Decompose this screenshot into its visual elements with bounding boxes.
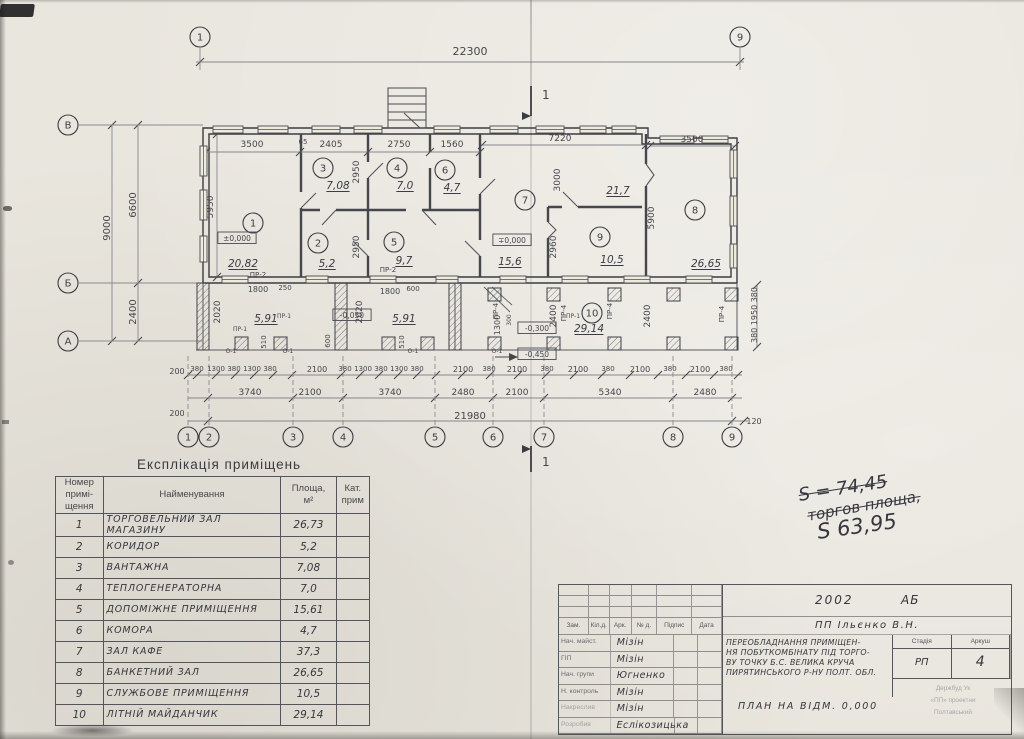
axis-label: В: [65, 121, 72, 132]
dim-label: 6600: [128, 192, 139, 217]
signature-cell: [674, 701, 698, 717]
staff-row: НакресливМізін: [559, 701, 722, 718]
title-block-grid: Зам.Кіл.д.Арк.№ д.ПідписДата Нач. майст.…: [559, 585, 723, 734]
axis-label: А: [65, 337, 72, 348]
room-number: 8: [692, 206, 698, 217]
element-mark: ПР-4: [718, 305, 726, 322]
project-line: Пирятинського р-ну Полт. обл.: [726, 668, 889, 678]
element-mark: О-1: [492, 348, 503, 355]
project-description: Переобладнання приміщен-ня побуткомбінат…: [723, 635, 893, 697]
axis-label: 9: [737, 33, 743, 44]
staff-role: ГІП: [559, 652, 611, 668]
room-cat-cell: [336, 536, 369, 557]
dim-label: 2100: [568, 365, 588, 374]
staff-name: Мізін: [611, 685, 675, 701]
room-name-cell: Теплогенераторна: [103, 578, 281, 599]
room-cat-cell: [336, 578, 369, 599]
staff-row: РозробивЕслікозицька: [559, 718, 722, 735]
room-area: 5,2: [319, 258, 336, 270]
axis-label: 1: [197, 33, 203, 44]
date-cell: [698, 718, 722, 734]
room-number-cell: 5: [56, 599, 104, 620]
dim-label: 380: [663, 365, 676, 373]
table-row: 6Комора4,7: [56, 620, 370, 641]
room-number: 5: [391, 238, 397, 249]
explication-block: Експлікація приміщень Номер примі- щення…: [55, 457, 370, 726]
room-number: 2: [315, 239, 321, 250]
dim-label: 250: [278, 284, 291, 292]
dim-label: 380: [410, 365, 423, 373]
signature-cell: [674, 685, 698, 701]
element-mark: О-1: [283, 348, 294, 355]
pier-column: [488, 288, 501, 301]
dim-label: 2100: [630, 365, 650, 374]
pier-column: [725, 288, 738, 301]
entrance-stairs: [388, 88, 426, 128]
pier-column: [449, 283, 461, 350]
staff-role: Накреслив: [559, 701, 611, 717]
room-name-cell: Зал кафе: [103, 641, 281, 662]
room-number: 4: [394, 164, 400, 175]
level-mark: ±0,000: [223, 234, 251, 243]
level-mark: -0,450: [525, 350, 549, 359]
table-row: 3Вантажна7,08: [56, 557, 370, 578]
room-number: 3: [320, 164, 326, 175]
room-cat-cell: [336, 662, 369, 683]
col-header-number: Номер примі- щення: [56, 477, 104, 514]
room-name-cell: Літній майданчик: [103, 704, 281, 725]
pier-column: [421, 337, 434, 350]
room-area: 29,14: [574, 323, 604, 335]
room-name-cell: Коридор: [103, 536, 281, 557]
element-mark: ПР-4: [492, 302, 500, 319]
dim-label: 380: [190, 365, 203, 373]
element-mark: ПР-4: [606, 302, 614, 319]
table-row: 5Допоміжне приміщення15,61: [56, 599, 370, 620]
title-block-empty-row: [559, 585, 722, 596]
empty-cell: [632, 585, 658, 595]
room-area-cell: 7,0: [281, 578, 336, 599]
staff-row: Нач. групиЮгненко: [559, 668, 722, 685]
room-area: 7,0: [397, 180, 414, 192]
empty-cell: [559, 585, 589, 595]
dim-label: 3000: [553, 168, 563, 191]
dim-label: 1300: [243, 365, 261, 373]
section-mark-top: 1: [522, 86, 550, 120]
room-area-cell: 15,61: [281, 599, 336, 620]
axis-label: 4: [340, 433, 346, 444]
header-cell: Дата: [692, 618, 722, 634]
axis-label: 3: [290, 433, 296, 444]
signature-cell: [675, 718, 699, 734]
room-cat-cell: [336, 641, 369, 662]
room-area-cell: 26,73: [281, 513, 336, 536]
element-mark: О-1: [226, 348, 237, 355]
room-name-cell: Вантажна: [103, 557, 281, 578]
area-label: 5,91: [392, 313, 415, 325]
axis-label: 7: [541, 433, 547, 444]
room-area-cell: 4,7: [281, 620, 336, 641]
faint-line: Полтавський: [899, 707, 1007, 719]
project-line: Переобладнання приміщен-: [726, 638, 889, 648]
room-cat-cell: [336, 599, 369, 620]
dim-label: 2950: [352, 235, 362, 258]
dim-label: 5950: [206, 195, 216, 218]
element-mark: ПР-1: [233, 326, 247, 333]
sheet-label: Аркуш: [952, 635, 1011, 648]
room-number-cell: 10: [56, 704, 104, 725]
room-area: 20,82: [228, 258, 258, 270]
dim-label: 2100: [307, 365, 327, 374]
dim-label: 120: [746, 417, 761, 426]
title-block-header-row: Зам.Кіл.д.Арк.№ д.ПідписДата: [559, 618, 722, 635]
date-cell: [698, 668, 722, 684]
year-row: 2002 АБ: [723, 585, 1011, 617]
dim-label: 7220: [549, 134, 572, 144]
drawing-title: План на відм. 0,000: [723, 701, 893, 712]
dim-label: 2100: [690, 365, 710, 374]
room-name-cell: Службове приміщення: [103, 683, 281, 704]
explication-table: Номер примі- щення Найменування Площа, м…: [55, 476, 370, 726]
pier-column: [235, 337, 248, 350]
dim-label: 65: [299, 138, 308, 146]
explication-title: Експлікація приміщень: [137, 457, 370, 472]
header-cell: Кіл.д.: [589, 618, 610, 634]
room-area-cell: 5,2: [281, 536, 336, 557]
dim-label: 380: [482, 365, 495, 373]
staff-name: Мізін: [611, 635, 675, 651]
axis-label: 2: [206, 433, 212, 444]
empty-cell: [657, 585, 692, 595]
dim-label: 2405: [320, 140, 343, 150]
room-area-cell: 10,5: [281, 683, 336, 704]
empty-cell: [589, 585, 610, 595]
room-number: 1: [250, 219, 256, 230]
date-cell: [698, 701, 722, 717]
room-number-cell: 2: [56, 536, 104, 557]
pier-column: [547, 288, 560, 301]
room-number: 9: [597, 233, 603, 244]
empty-cell: [610, 596, 632, 606]
col-header-name: Найменування: [103, 477, 281, 514]
pier-column: [725, 337, 738, 350]
signature-cell: [674, 635, 698, 651]
dim-label: 1800: [248, 285, 268, 294]
room-name-cell: Комора: [103, 620, 281, 641]
empty-cell: [610, 585, 632, 595]
axis-label: 1: [185, 433, 191, 444]
outer-walls: [203, 128, 737, 283]
dim-label: 380: [374, 365, 387, 373]
axis-label: 9: [729, 433, 735, 444]
level-mark: -0,050: [340, 311, 364, 320]
staff-name: Еслікозицька: [611, 718, 675, 734]
scanned-drawing-sheet: 1 1 19123456789ВБА2230035006524052750156…: [0, 0, 1024, 739]
dim-label: 200: [169, 409, 184, 418]
room-cat-cell: [336, 620, 369, 641]
room-name-cell: Торговельний зал магазину: [103, 513, 281, 536]
dim-label: 600: [324, 334, 332, 347]
header-cell: Підпис: [657, 618, 692, 634]
empty-cell: [632, 596, 658, 606]
table-row: 1Торговельний зал магазину26,73: [56, 513, 370, 536]
title-block-empty-row: [559, 607, 722, 618]
room-number-cell: 4: [56, 578, 104, 599]
room-cat-cell: [336, 704, 369, 725]
empty-cell: [692, 585, 722, 595]
section-mark-bottom: 1: [522, 445, 550, 472]
faint-line: «ПП» проектни: [899, 695, 1007, 707]
dim-label: 21980: [454, 411, 486, 422]
year-value: 2002: [815, 593, 854, 607]
staff-row: Нач. майст.Мізін: [559, 635, 722, 652]
stage-sheet-grid: Стадія Аркуш РП 4: [893, 635, 1011, 679]
dim-label: 2400: [128, 299, 139, 324]
area-label: 5,91: [254, 313, 277, 325]
empty-cell: [657, 607, 692, 617]
room-number-cell: 7: [56, 641, 104, 662]
dim-label: 1300: [390, 365, 408, 373]
signature-cell: [674, 668, 698, 684]
empty-cell: [559, 607, 589, 617]
header-cell: Зам.: [559, 618, 589, 634]
element-mark: ПР-2: [250, 271, 266, 279]
room-area: 9,7: [396, 255, 413, 267]
empty-cell: [589, 596, 610, 606]
table-row: 4Теплогенераторна7,0: [56, 578, 370, 599]
sheet-value: 4: [952, 649, 1011, 679]
dim-label: 380: [227, 365, 240, 373]
header-cell: № д.: [632, 618, 658, 634]
dim-label: 2020: [213, 300, 223, 323]
pier-column: [382, 337, 395, 350]
dim-label: 3500: [241, 140, 264, 150]
element-mark: ПР-1: [566, 313, 580, 320]
axis-label: 5: [432, 433, 438, 444]
dim-label: 380: [338, 365, 351, 373]
room-area-cell: 26,65: [281, 662, 336, 683]
firm-name: ПП Ільєнко В.Н.: [723, 617, 1011, 635]
table-row: 7Зал кафе37,3: [56, 641, 370, 662]
room-area: 10,5: [600, 254, 624, 266]
empty-cell: [632, 607, 658, 617]
dim-label: 5900: [647, 206, 657, 229]
faint-stamp-text: Держбуд Ук«ПП» проектниПолтавський: [899, 683, 1007, 720]
room-number-cell: 9: [56, 683, 104, 704]
element-mark: ПР-4: [560, 304, 568, 321]
dim-label: 3740: [379, 388, 402, 398]
faint-line: Держбуд Ук: [899, 683, 1007, 695]
staff-role: Нач. майст.: [559, 635, 611, 651]
staff-name: Мізін: [611, 652, 675, 668]
date-cell: [698, 652, 722, 668]
room-area-cell: 29,14: [281, 704, 336, 725]
dim-label: 300: [506, 314, 513, 326]
staff-name: Югненко: [611, 668, 675, 684]
table-row: 10Літній майданчик29,14: [56, 704, 370, 725]
title-block-right: 2002 АБ ПП Ільєнко В.Н. Переобладнання п…: [723, 585, 1011, 734]
date-cell: [698, 635, 722, 651]
dim-label: 2480: [694, 388, 717, 398]
dim-label: 1300: [207, 365, 225, 373]
dim-label: 2400: [549, 304, 559, 327]
col-header-area: Площа, м²: [281, 477, 336, 514]
room-area: 4,7: [444, 182, 461, 194]
project-line: ву точку б.с. Велика Круча: [726, 658, 889, 668]
dim-label: 200: [169, 367, 184, 376]
section-label: 1: [542, 88, 550, 102]
dim-label: 2400: [643, 304, 653, 327]
pier-column: [608, 288, 621, 301]
staff-name: Мізін: [611, 701, 675, 717]
empty-cell: [559, 596, 589, 606]
project-line: ня побуткомбінату під торго-: [726, 648, 889, 658]
stage-label: Стадія: [893, 635, 952, 648]
room-number-cell: 8: [56, 662, 104, 683]
table-row: 8Банкетний зал26,65: [56, 662, 370, 683]
dim-label: 2100: [299, 388, 322, 398]
room-area-cell: 7,08: [281, 557, 336, 578]
pier-column: [608, 337, 621, 350]
col-header-cat: Кат. прим: [336, 477, 369, 514]
dim-label: 5340: [599, 388, 622, 398]
staff-role: Н. контроль: [559, 685, 611, 701]
pier-column: [197, 283, 209, 350]
table-row: 9Службове приміщення10,5: [56, 683, 370, 704]
dim-label: 380: [263, 365, 276, 373]
title-block: Зам.Кіл.д.Арк.№ д.ПідписДата Нач. майст.…: [558, 584, 1012, 735]
staff-row: Н. контрольМізін: [559, 685, 722, 702]
staff-role: Розробив: [559, 718, 611, 734]
room-number-cell: 1: [56, 513, 104, 536]
dim-label: 3740: [239, 388, 262, 398]
room-number-cell: 6: [56, 620, 104, 641]
empty-cell: [589, 607, 610, 617]
empty-cell: [610, 607, 632, 617]
element-mark: ПР-1: [277, 313, 291, 320]
area-label: 21,7: [606, 185, 630, 197]
dim-label: 2750: [388, 140, 411, 150]
code-value: АБ: [901, 593, 919, 607]
staff-role: Нач. групи: [559, 668, 611, 684]
room-cat-cell: [336, 557, 369, 578]
axis-label: 8: [670, 433, 676, 444]
room-cat-cell: [336, 683, 369, 704]
title-block-empty-row: [559, 596, 722, 607]
signature-cell: [674, 652, 698, 668]
room-name-cell: Допоміжне приміщення: [103, 599, 281, 620]
room-name-cell: Банкетний зал: [103, 662, 281, 683]
dim-label: 22300: [453, 45, 488, 58]
level-mark: ∓0,000: [498, 236, 526, 245]
dim-label: 1560: [441, 140, 464, 150]
room-cat-cell: [336, 513, 369, 536]
dim-label: 380: [540, 365, 553, 373]
axis-label: 6: [490, 433, 496, 444]
pier-column: [667, 288, 680, 301]
room-area: 7,08: [326, 180, 350, 192]
empty-cell: [692, 607, 722, 617]
empty-cell: [657, 596, 692, 606]
axis-label: Б: [65, 279, 72, 290]
room-number: 7: [522, 196, 528, 207]
level-mark: -0,300: [525, 324, 549, 333]
element-mark: ПР-2: [380, 266, 396, 274]
room-area-cell: 37,3: [281, 641, 336, 662]
dim-label: 380: [719, 365, 732, 373]
dim-label: 510: [260, 335, 268, 348]
dim-label: 2100: [506, 388, 529, 398]
room-area: 15,6: [498, 256, 522, 268]
table-row: 2Коридор5,2: [56, 536, 370, 557]
dim-label: 2960: [549, 235, 559, 258]
dim-label: 510: [398, 335, 406, 348]
dim-label: 2100: [507, 365, 527, 374]
dim-label: 2100: [453, 365, 473, 374]
room-number-cell: 3: [56, 557, 104, 578]
dim-label: 3500: [681, 135, 704, 145]
room-area: 26,65: [691, 258, 721, 270]
pier-column: [667, 337, 680, 350]
empty-cell: [692, 596, 722, 606]
dim-label: 380 1950 380: [750, 287, 759, 343]
date-cell: [698, 685, 722, 701]
dim-label: 600: [406, 285, 419, 293]
dim-label: 1800: [380, 287, 400, 296]
dim-label: 2950: [352, 160, 362, 183]
section-label: 1: [542, 455, 550, 469]
room-number: 6: [442, 166, 448, 177]
header-cell: Арк.: [610, 618, 632, 634]
dim-label: 380: [601, 365, 614, 373]
element-mark: О-1: [408, 348, 419, 355]
stage-value: РП: [893, 649, 952, 679]
dim-label: 1300: [354, 365, 372, 373]
dim-label: 9000: [102, 215, 113, 240]
room-number: 10: [586, 309, 599, 320]
dim-label: 2480: [452, 388, 475, 398]
staff-row: ГІПМізін: [559, 652, 722, 669]
